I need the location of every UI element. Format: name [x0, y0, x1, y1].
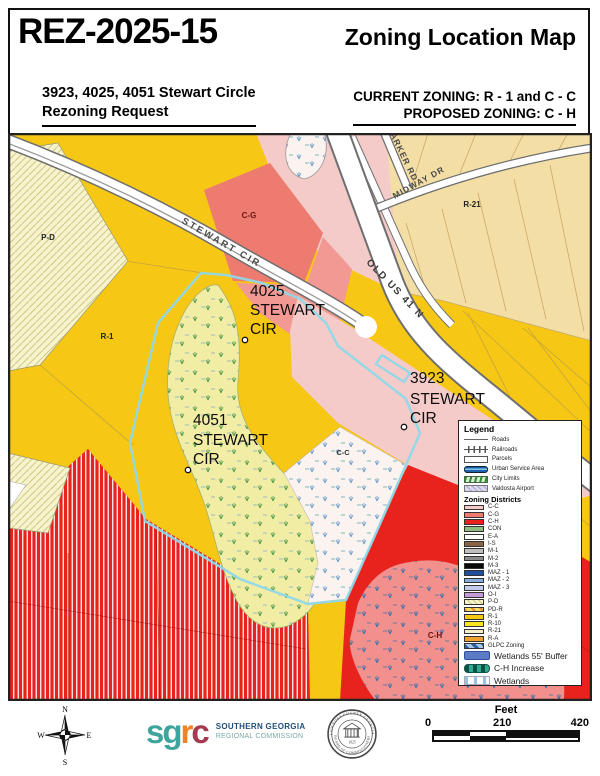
- legend-item-c-h-label: C-H: [488, 519, 499, 525]
- svg-text:STEWART: STEWART: [410, 391, 485, 408]
- legend-item-p-d-swatch: [464, 599, 484, 605]
- legend-item-m-2-swatch: [464, 556, 484, 562]
- legend-item-wetlands: Wetlands: [464, 675, 576, 686]
- subject-address-block: 3923, 4025, 4051 Stewart Circle Rezoning…: [42, 84, 256, 127]
- legend-item-urban-service-area: Urban Service Area: [464, 464, 576, 474]
- legend-item-pd-r-label: PD-R: [488, 607, 503, 613]
- zone-label-cc: C-C: [336, 448, 350, 457]
- scale-bar-units: Feet: [423, 704, 589, 717]
- legend-item-r-10-label: R-10: [488, 621, 501, 627]
- legend-item-maz-1-swatch: [464, 570, 484, 576]
- legend-item-m-3-label: M-3: [488, 563, 498, 569]
- legend-item-maz-1-label: MAZ - 1: [488, 570, 509, 576]
- legend-item-pd-r: PD-R: [464, 606, 576, 613]
- legend-general-items: RoadsRailroadsParcelsUrban Service AreaC…: [464, 435, 576, 494]
- svg-text:3923: 3923: [410, 370, 444, 387]
- legend: Legend RoadsRailroadsParcelsUrban Servic…: [458, 420, 582, 686]
- legend-item-o-i-swatch: [464, 592, 484, 598]
- scale-bar-graphic: [432, 730, 580, 742]
- compass-rose: N E S W: [36, 704, 94, 766]
- legend-item-c-c-swatch: [464, 505, 484, 511]
- legend-item-c-c: C-C: [464, 504, 576, 511]
- sgrc-logo: sgrc SOUTHERN GEORGIA REGIONAL COMMISSIO…: [146, 715, 305, 748]
- legend-item-m-3: M-3: [464, 562, 576, 569]
- address-4025-marker: [242, 337, 247, 342]
- zone-label-r1: R-1: [101, 332, 114, 341]
- legend-title: Legend: [464, 424, 576, 435]
- legend-item-con: CON: [464, 526, 576, 533]
- legend-item-maz-2-swatch: [464, 578, 484, 584]
- legend-item-i-s-swatch: [464, 541, 484, 547]
- legend-item-r-1-label: R-1: [488, 614, 498, 620]
- legend-item-city-limits-swatch: [464, 476, 488, 483]
- legend-item-glpc-zoning-swatch: [464, 643, 484, 649]
- legend-item-wetlands-55-buffer-swatch: [464, 651, 490, 660]
- road-junction: [355, 316, 377, 338]
- legend-item-e-a-label: E-A: [488, 534, 498, 540]
- county-seal: LOWNDES COUNTY GEORGIA BOARD OF COMMISSI…: [326, 708, 378, 760]
- zoning-map-page: REZ-2025-15 Zoning Location Map 3923, 40…: [0, 0, 600, 776]
- page-title: Zoning Location Map: [345, 24, 576, 51]
- request-type: Rezoning Request: [42, 103, 256, 122]
- legend-item-maz-3-swatch: [464, 585, 484, 591]
- address-4051-marker: [185, 467, 190, 472]
- svg-text:STEWART: STEWART: [193, 432, 268, 449]
- legend-item-r-a: R-A: [464, 635, 576, 642]
- logo-letter-s: s: [146, 713, 162, 750]
- scale-tick-420: 420: [571, 717, 589, 729]
- legend-item-roads: Roads: [464, 435, 576, 445]
- sgrc-org-name: SOUTHERN GEORGIA REGIONAL COMMISSION: [216, 722, 306, 742]
- footer: N E S W sgrc SOUTHERN GEORGIA REGIONAL C…: [8, 701, 592, 768]
- legend-item-roads-swatch: [464, 436, 488, 443]
- logo-letter-g: g: [162, 713, 180, 750]
- legend-item-r-1: R-1: [464, 613, 576, 620]
- sgrc-org-line2: REGIONAL COMMISSION: [216, 732, 306, 742]
- legend-item-c-h-swatch: [464, 519, 484, 525]
- legend-item-p-d-label: P-D: [488, 599, 498, 605]
- legend-item-m-2-label: M-2: [488, 556, 498, 562]
- legend-item-city-limits: City Limits: [464, 474, 576, 484]
- scale-tick-0: 0: [425, 717, 431, 729]
- subject-address: 3923, 4025, 4051 Stewart Circle: [42, 84, 256, 103]
- zone-label-ch: C-H: [428, 631, 442, 640]
- legend-item-wetlands-55-buffer-label: Wetlands 55' Buffer: [494, 651, 568, 661]
- legend-item-e-a: E-A: [464, 533, 576, 540]
- legend-item-m-1-label: M-1: [488, 548, 498, 554]
- legend-item-r-a-label: R-A: [488, 636, 498, 642]
- legend-item-parcels-label: Parcels: [492, 456, 512, 462]
- legend-item-e-a-swatch: [464, 534, 484, 540]
- svg-text:CIR: CIR: [193, 451, 220, 468]
- legend-item-r-21-swatch: [464, 629, 484, 635]
- legend-item-pd-r-swatch: [464, 607, 484, 613]
- legend-item-r-10: R-10: [464, 621, 576, 628]
- legend-item-o-i: O-I: [464, 591, 576, 598]
- zone-label-cg: C-G: [242, 211, 257, 220]
- compass-s: S: [63, 758, 67, 766]
- zone-label-r21: R-21: [463, 200, 481, 209]
- svg-text:4025: 4025: [250, 283, 284, 300]
- legend-overlay-items: Wetlands 55' BufferC-H IncreaseWetlands: [464, 650, 576, 686]
- logo-letter-r: r: [181, 713, 192, 750]
- legend-item-r-21: R-21: [464, 628, 576, 635]
- legend-item-wetlands-label: Wetlands: [494, 676, 529, 686]
- seal-year: 1825: [348, 740, 356, 744]
- sgrc-org-line1: SOUTHERN GEORGIA: [216, 722, 306, 732]
- legend-item-roads-label: Roads: [492, 437, 509, 443]
- legend-item-i-s: I-S: [464, 540, 576, 547]
- legend-item-maz-2: MAZ - 2: [464, 577, 576, 584]
- legend-item-city-limits-label: City Limits: [492, 476, 520, 482]
- legend-item-i-s-label: I-S: [488, 541, 496, 547]
- scale-bar-ticks: 0 210 420: [423, 717, 589, 730]
- legend-item-railroads: Railroads: [464, 445, 576, 455]
- legend-item-urban-service-area-swatch: [464, 466, 488, 473]
- legend-item-valdosta-airport-label: Valdosta Airport: [492, 486, 534, 492]
- zone-label-pd: P-D: [41, 233, 55, 242]
- svg-text:CIR: CIR: [410, 410, 437, 427]
- legend-item-wetlands-swatch: [464, 676, 490, 685]
- legend-item-m-2: M-2: [464, 555, 576, 562]
- compass-e: E: [87, 731, 92, 740]
- legend-item-m-1: M-1: [464, 548, 576, 555]
- legend-item-r-21-label: R-21: [488, 628, 501, 634]
- legend-item-maz-2-label: MAZ - 2: [488, 577, 509, 583]
- legend-item-glpc-zoning: GLPC Zoning: [464, 642, 576, 649]
- logo-letter-c: c: [191, 713, 207, 750]
- legend-item-c-c-label: C-C: [488, 504, 499, 510]
- legend-item-valdosta-airport: Valdosta Airport: [464, 484, 576, 494]
- legend-item-parcels: Parcels: [464, 455, 576, 465]
- scale-tick-210: 210: [493, 717, 511, 729]
- svg-text:STEWART: STEWART: [250, 302, 325, 319]
- legend-item-c-h-increase-swatch: [464, 664, 490, 673]
- legend-item-wetlands-55-buffer: Wetlands 55' Buffer: [464, 650, 576, 663]
- legend-item-c-h-increase: C-H Increase: [464, 662, 576, 675]
- case-number: REZ-2025-15: [18, 12, 217, 52]
- svg-text:4051: 4051: [193, 412, 227, 429]
- legend-item-parcels-swatch: [464, 456, 488, 463]
- legend-item-p-d: P-D: [464, 599, 576, 606]
- legend-item-c-g: C-G: [464, 511, 576, 518]
- address-3923-marker: [401, 424, 406, 429]
- legend-district-items: C-CC-GC-HCONE-AI-SM-1M-2M-3MAZ - 1MAZ - …: [464, 504, 576, 650]
- scale-bar: Feet 0 210 420: [423, 704, 589, 742]
- legend-item-con-label: CON: [488, 526, 501, 532]
- legend-item-maz-3: MAZ - 3: [464, 584, 576, 591]
- legend-item-maz-1: MAZ - 1: [464, 569, 576, 576]
- legend-districts-title: Zoning Districts: [464, 495, 576, 504]
- legend-item-maz-3-label: MAZ - 3: [488, 585, 509, 591]
- legend-item-r-a-swatch: [464, 636, 484, 642]
- scale-segment-2: [470, 732, 506, 740]
- legend-item-m-1-swatch: [464, 548, 484, 554]
- legend-item-c-h-increase-label: C-H Increase: [494, 663, 544, 673]
- legend-item-r-1-swatch: [464, 614, 484, 620]
- legend-item-valdosta-airport-swatch: [464, 485, 488, 492]
- legend-item-urban-service-area-label: Urban Service Area: [492, 466, 544, 472]
- scale-segment-3: [506, 732, 578, 740]
- legend-item-c-g-swatch: [464, 512, 484, 518]
- legend-item-railroads-swatch: [464, 446, 488, 453]
- zoning-summary-block: CURRENT ZONING: R - 1 and C - C PROPOSED…: [353, 88, 576, 126]
- legend-item-r-10-swatch: [464, 621, 484, 627]
- legend-item-o-i-label: O-I: [488, 592, 496, 598]
- legend-item-c-h: C-H: [464, 518, 576, 525]
- compass-w: W: [37, 731, 45, 740]
- legend-item-con-swatch: [464, 526, 484, 532]
- svg-text:CIR: CIR: [250, 321, 277, 338]
- sgrc-logo-letters: sgrc: [146, 715, 208, 748]
- legend-item-glpc-zoning-label: GLPC Zoning: [488, 643, 524, 649]
- scale-segment-1: [434, 732, 470, 740]
- current-zoning: CURRENT ZONING: R - 1 and C - C: [353, 88, 576, 105]
- compass-n: N: [62, 705, 68, 714]
- proposed-zoning: PROPOSED ZONING: C - H: [353, 105, 576, 122]
- legend-item-c-g-label: C-G: [488, 512, 499, 518]
- legend-item-railroads-label: Railroads: [492, 447, 517, 453]
- legend-item-m-3-swatch: [464, 563, 484, 569]
